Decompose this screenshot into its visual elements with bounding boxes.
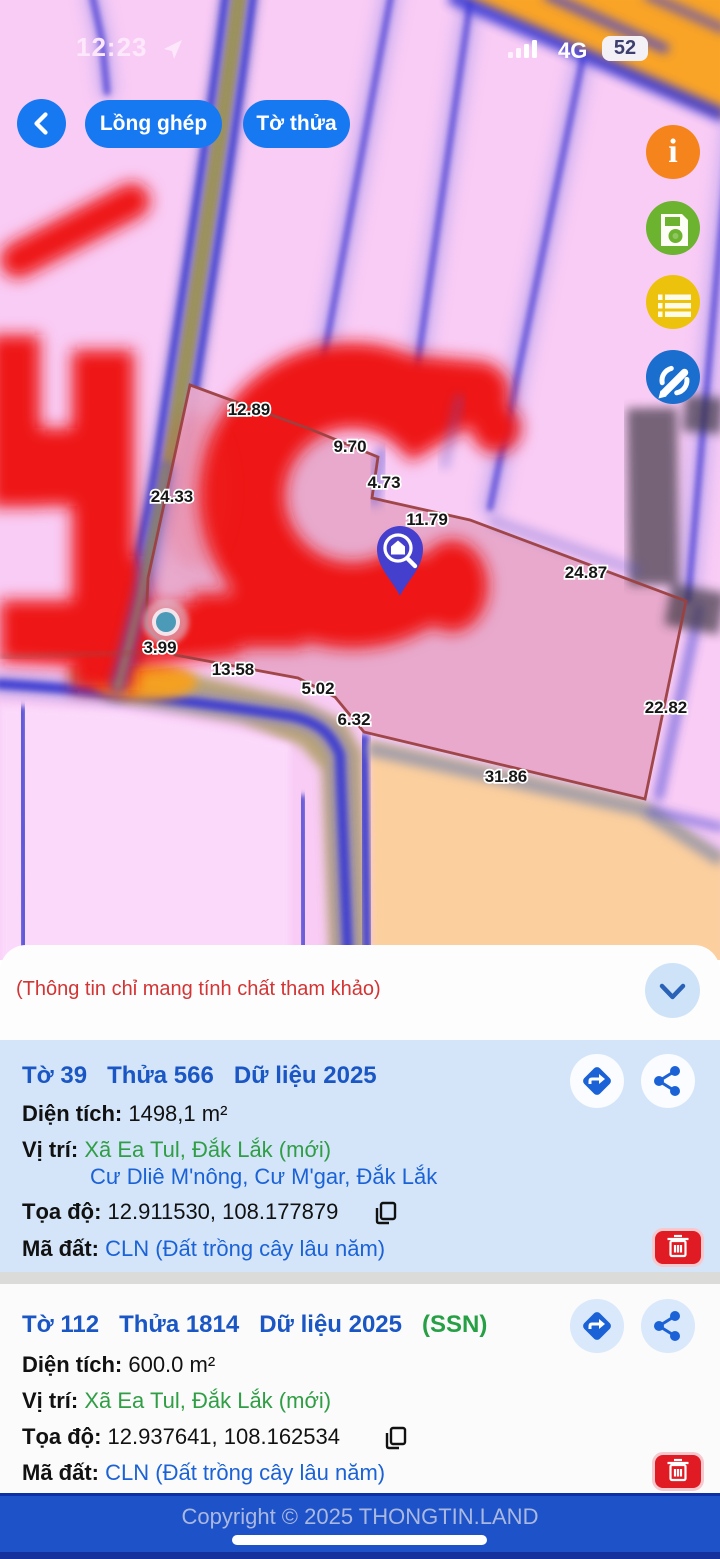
svg-text:13.58: 13.58 bbox=[212, 660, 255, 679]
svg-text:12.89: 12.89 bbox=[228, 400, 271, 419]
svg-text:22.82: 22.82 bbox=[645, 698, 688, 717]
svg-text:31.86: 31.86 bbox=[485, 767, 528, 786]
svg-text:5.02: 5.02 bbox=[301, 679, 334, 698]
svg-text:4.73: 4.73 bbox=[367, 473, 400, 492]
svg-text:24.87: 24.87 bbox=[565, 563, 608, 582]
svg-text:3.99: 3.99 bbox=[143, 638, 176, 657]
svg-text:24.33: 24.33 bbox=[151, 487, 194, 506]
svg-text:11.79: 11.79 bbox=[406, 510, 448, 529]
svg-text:6.32: 6.32 bbox=[337, 710, 370, 729]
svg-text:9.70: 9.70 bbox=[333, 437, 366, 456]
